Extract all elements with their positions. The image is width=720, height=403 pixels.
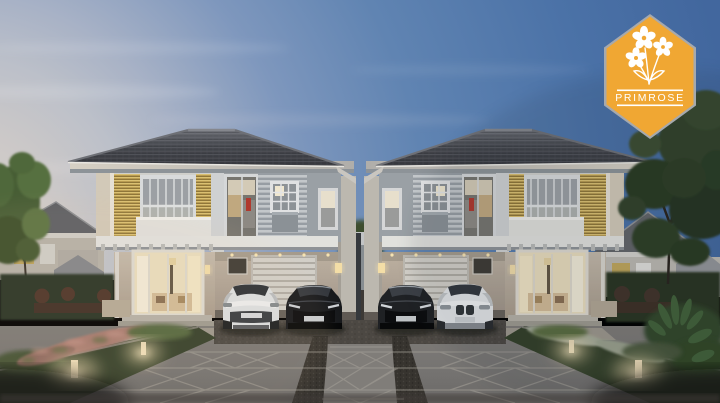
svg-text:PRIMROSE: PRIMROSE bbox=[615, 92, 685, 104]
